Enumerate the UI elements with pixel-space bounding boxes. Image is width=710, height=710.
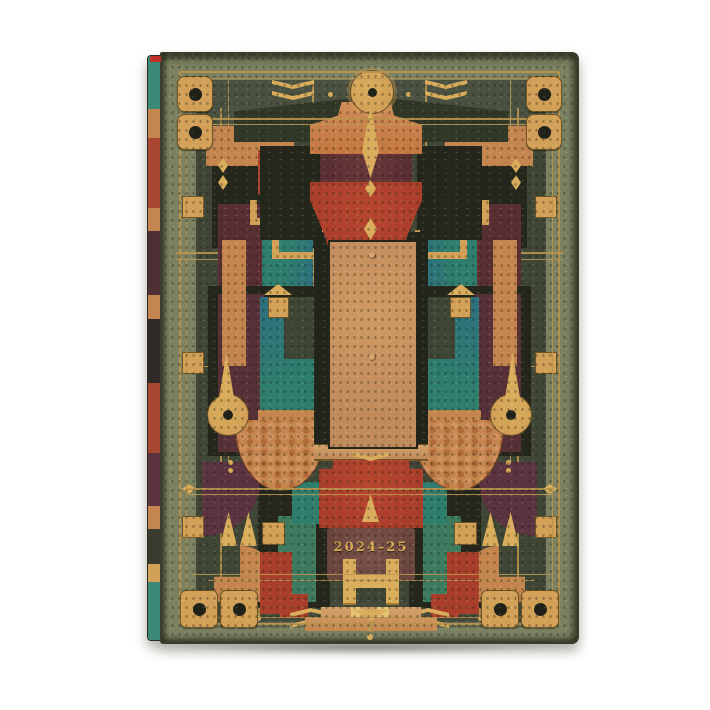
h-ornament [343, 559, 399, 605]
corner-square-bl [220, 590, 258, 628]
corner-circle [534, 603, 547, 616]
corner-square-tr [526, 114, 562, 150]
corner-circle [538, 88, 551, 101]
corner-square-br [481, 590, 519, 628]
product-photo-scene: 2024–25 [0, 0, 710, 710]
corner-circle [189, 88, 202, 101]
corner-circle [189, 126, 202, 139]
book-shadow [150, 645, 580, 654]
corner-square-tl [177, 114, 213, 150]
dark-flank-right [420, 146, 482, 240]
corner-circle [538, 126, 551, 139]
central-tan-panel [328, 240, 418, 449]
top-disc-center [368, 88, 377, 97]
panel-stud [369, 354, 376, 361]
journal-book: 2024–25 [147, 52, 579, 644]
center-column: 2024–25 [162, 54, 579, 642]
corner-circle [193, 603, 206, 616]
panel-stud [369, 252, 376, 259]
h-crossbar [352, 575, 390, 588]
year-label: 2024–25 [327, 540, 415, 555]
corner-square-bl [180, 590, 218, 628]
funnel-stem [369, 621, 372, 632]
corner-square-br [521, 590, 559, 628]
corner-circle [233, 603, 246, 616]
funnel-dot [367, 634, 373, 640]
front-cover: 2024–25 [160, 52, 579, 644]
corner-square-tr [526, 76, 562, 112]
spine-edge [147, 55, 161, 641]
corner-circle [494, 603, 507, 616]
corner-square-tl [177, 76, 213, 112]
top-disc [350, 70, 394, 114]
headband-ribbon [150, 56, 161, 62]
